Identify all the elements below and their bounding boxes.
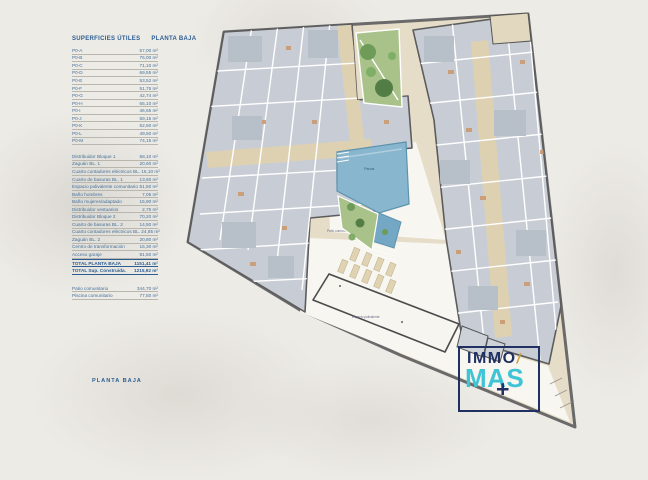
table-row: P0-D69,55 m²	[72, 70, 158, 78]
table-row: Distribuidor Bloque 158,10 m²	[72, 153, 158, 161]
immo-mas-logo: IMMO/ MAS +	[458, 346, 540, 412]
table-row: P0-K52,50 m²	[72, 122, 158, 130]
table-row: TOTAL PLANTA BAJA1151,41 m²	[72, 259, 158, 268]
table-row: Espacio polivalente comunitario51,50 m²	[72, 183, 158, 191]
table-row: P0-A57,00 m²	[72, 47, 158, 55]
table-row: Cuarto contadores eléctricos BL. 15,10 m…	[72, 168, 158, 176]
table-row: P0-C71,10 m²	[72, 62, 158, 70]
logo-mas-text: MAS	[465, 365, 524, 391]
table-row: P0-B76,00 m²	[72, 55, 158, 63]
common-rows: Distribuidor Bloque 158,10 m²Zaguán BL. …	[72, 153, 158, 259]
table-row: Centro de transformación16,30 m²	[72, 244, 158, 252]
table-row: P0-L49,50 m²	[72, 130, 158, 138]
floor-title: PLANTA BAJA	[92, 378, 142, 384]
table-floor-column: PLANTA BAJA	[151, 36, 196, 42]
table-row: Distribuidor Bloque 270,20 m²	[72, 213, 158, 221]
table-row: P0-H65,10 m²	[72, 100, 158, 108]
transformer-room	[490, 13, 531, 44]
table-row: Cuarto contadores eléctricos BL. 24,85 m…	[72, 229, 158, 237]
table-row: Baño hombres7,05 m²	[72, 191, 158, 199]
surfaces-table: SUPERFICIES ÚTILES PLANTA BAJA P0-A57,00…	[72, 36, 158, 300]
table-row: Patio comunitario344,70 m²	[72, 285, 158, 293]
table-row: Acceso garaje81,50 m²	[72, 251, 158, 259]
table-row: Piscina comunitario77,50 m²	[72, 292, 158, 300]
table-row: P0-M74,15 m²	[72, 138, 158, 146]
table-row: Baño mujeres/adaptado15,90 m²	[72, 198, 158, 206]
multipurpose-label: Espacio polivalente	[352, 315, 380, 319]
table-title: SUPERFICIES ÚTILES	[72, 36, 140, 42]
plan-sheet: { "table": { "header": { "col1": "SUPERF…	[0, 0, 648, 439]
total-rows: TOTAL PLANTA BAJA1151,41 m²TOTAL Sup. Co…	[72, 259, 158, 275]
table-row: Cuarto de basuras BL. 214,50 m²	[72, 221, 158, 229]
table-row: Distribuidor vestuarios2,75 m²	[72, 206, 158, 214]
table-row: P0-G42,74 m²	[72, 92, 158, 100]
table-row: P0-E53,52 m²	[72, 77, 158, 85]
table-row: P0-J59,15 m²	[72, 115, 158, 123]
table-row: Zaguán BL. 220,80 m²	[72, 236, 158, 244]
table-row: TOTAL Sup. Construida.1215,92 m²	[72, 267, 158, 275]
logo-plus-icon: +	[496, 378, 509, 401]
table-row: P0-I46,65 m²	[72, 107, 158, 115]
table-header: SUPERFICIES ÚTILES PLANTA BAJA	[72, 36, 158, 42]
pool-label: Piscina	[364, 167, 375, 171]
garden-top	[356, 29, 402, 107]
unit-rows: P0-A57,00 m²P0-B76,00 m²P0-C71,10 m²P0-D…	[72, 47, 158, 145]
outdoor-rows: Patio comunitario344,70 m²Piscina comuni…	[72, 285, 158, 300]
table-row: Cuarto de basuras BL. 113,60 m²	[72, 176, 158, 184]
table-row: P0-F51,75 m²	[72, 85, 158, 93]
table-row: Zaguán BL. 120,60 m²	[72, 161, 158, 169]
